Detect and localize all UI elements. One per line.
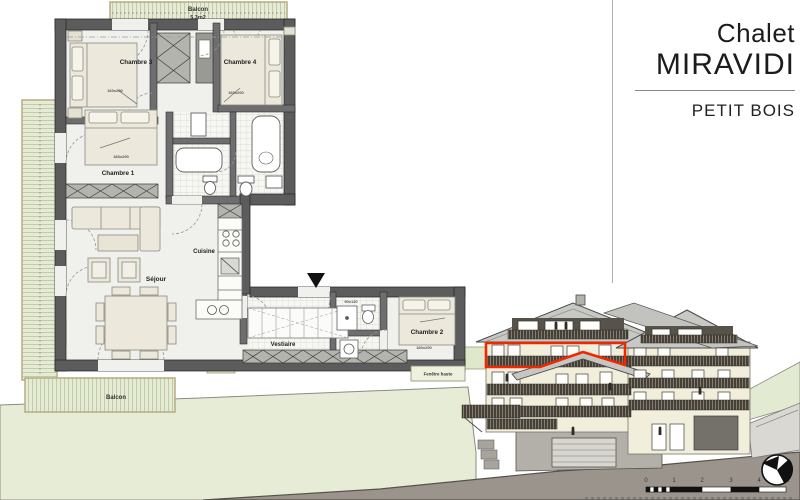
balcony-bottom-label: Balcon <box>106 395 126 401</box>
garage-door <box>552 438 616 467</box>
project-name: MIRAVIDI <box>615 48 795 82</box>
right-attic <box>641 326 737 343</box>
dim-shower: 90x120 <box>344 299 358 304</box>
floor-plan: Balcon 5,3m2 Balcon <box>22 2 486 412</box>
label-chambre4: Chambre 4 <box>224 59 257 66</box>
vanity-icon <box>266 176 282 188</box>
project-title: Chalet <box>615 18 795 48</box>
bed-chambre3 <box>68 31 137 118</box>
chimney <box>576 295 585 305</box>
label-chambre2: Chambre 2 <box>411 329 444 336</box>
drawing-sheet: Balcon 5,3m2 Balcon <box>0 0 800 500</box>
north-arrow-icon <box>762 455 793 485</box>
cabinet-icon <box>191 113 206 136</box>
left-attic <box>508 318 628 339</box>
dim-chambre1: 180x200 <box>113 154 129 159</box>
title-rule <box>635 90 795 91</box>
washer-icon <box>340 340 358 358</box>
label-vestiaire: Vestiaire <box>271 342 296 348</box>
left-wing-balcony <box>462 405 520 418</box>
svg-text:Fenêtre haute: Fenêtre haute <box>424 372 453 377</box>
title-block: Chalet MIRAVIDI PETIT BOIS <box>615 18 795 121</box>
dim-chambre4: 160x200 <box>228 90 244 95</box>
label-sejour: Séjour <box>146 276 167 283</box>
dim-chambre2: 180x200 <box>416 345 432 350</box>
title-block-divider <box>612 0 613 283</box>
bed-chambre2 <box>399 297 455 345</box>
balcony-top-label: Balcon <box>188 7 208 13</box>
high-window-annotation: Fenêtre haute <box>411 366 465 381</box>
bathtub-icon <box>252 116 280 172</box>
balcony-bottom: Balcon <box>25 378 175 412</box>
vestiaire-closet <box>248 308 348 338</box>
dining-set <box>96 287 176 359</box>
unit-name: PETIT BOIS <box>615 101 795 121</box>
dim-chambre3: 160x200 <box>107 88 123 93</box>
label-chambre1: Chambre 1 <box>102 170 135 177</box>
balcony-left <box>22 100 57 380</box>
stone-blocks <box>478 440 499 469</box>
bathtub-icon <box>176 148 222 172</box>
toilet-icon <box>203 176 217 195</box>
label-chambre3: Chambre 3 <box>120 59 153 66</box>
entrance-arrow-icon <box>307 273 325 288</box>
label-cuisine: Cuisine <box>193 249 215 255</box>
building-elevation <box>462 295 800 471</box>
